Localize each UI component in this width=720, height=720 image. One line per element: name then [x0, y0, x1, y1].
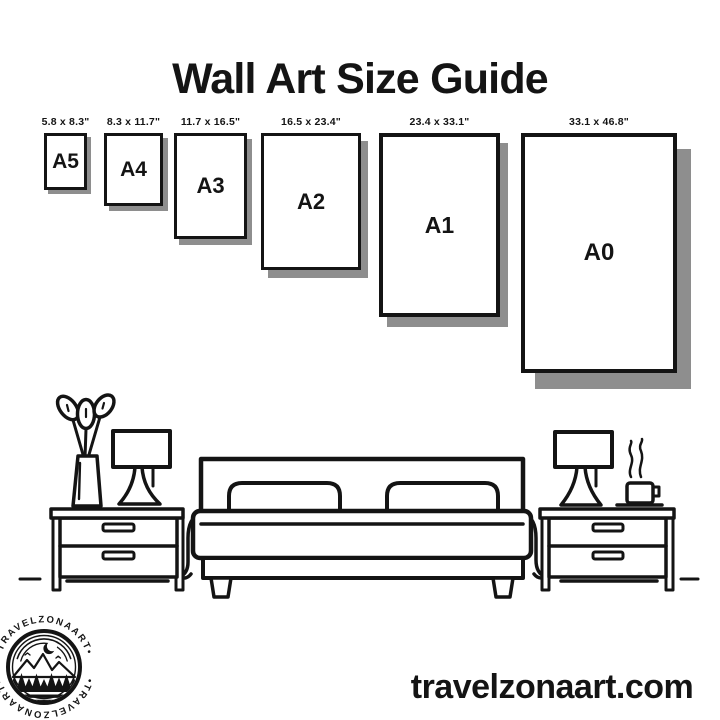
size-item-a0: 33.1 x 46.8" A0 [521, 116, 677, 373]
page-title: Wall Art Size Guide [0, 55, 720, 104]
paper-size-box-a5: A5 [44, 133, 87, 190]
paper-size-box-a0: A0 [521, 133, 677, 373]
size-dimensions-label: 8.3 x 11.7" [107, 116, 160, 129]
size-dimensions-label: 5.8 x 8.3" [42, 116, 90, 129]
nightstand-right [540, 509, 674, 590]
size-item-a4: 8.3 x 11.7" A4 [104, 116, 163, 206]
table-lamp-left-icon [113, 431, 170, 504]
drawer-handle [103, 552, 134, 559]
website-url: travelzonaart.com [384, 668, 720, 707]
size-dimensions-label: 16.5 x 23.4" [281, 116, 341, 129]
nightstand-left [51, 509, 183, 590]
coffee-cup-icon [617, 439, 662, 505]
size-item-a5: 5.8 x 8.3" A5 [44, 116, 87, 190]
paper-size-box-a2: A2 [261, 133, 361, 270]
paper-size-box-a4: A4 [104, 133, 163, 206]
size-code: A2 [297, 189, 325, 215]
bed-icon [180, 459, 546, 597]
drawer-handle [593, 524, 623, 531]
size-item-a3: 11.7 x 16.5" A3 [174, 116, 247, 239]
table-lamp-right-icon [555, 432, 612, 505]
paper-size-box-a3: A3 [174, 133, 247, 239]
size-code: A1 [425, 212, 454, 239]
size-code: A3 [196, 173, 224, 199]
size-dimensions-label: 23.4 x 33.1" [410, 116, 470, 129]
size-code: A4 [120, 158, 147, 182]
brand-logo: •TRAVELZONAART• •TRAVELZONAART• [0, 615, 96, 719]
size-guide-poster: Wall Art Size Guide 5.8 x 8.3" A5 8.3 x … [0, 0, 720, 720]
size-item-a2: 16.5 x 23.4" A2 [261, 116, 361, 270]
size-code: A0 [584, 239, 615, 267]
drawer-handle [593, 552, 623, 559]
plant-icon [53, 391, 118, 506]
size-dimensions-label: 33.1 x 46.8" [569, 116, 629, 129]
drawer-handle [103, 524, 134, 531]
paper-size-box-a1: A1 [379, 133, 500, 317]
size-item-a1: 23.4 x 33.1" A1 [379, 116, 500, 317]
size-dimensions-label: 11.7 x 16.5" [181, 116, 240, 129]
bedroom-scene-illustration [0, 380, 720, 610]
size-code: A5 [52, 150, 79, 174]
